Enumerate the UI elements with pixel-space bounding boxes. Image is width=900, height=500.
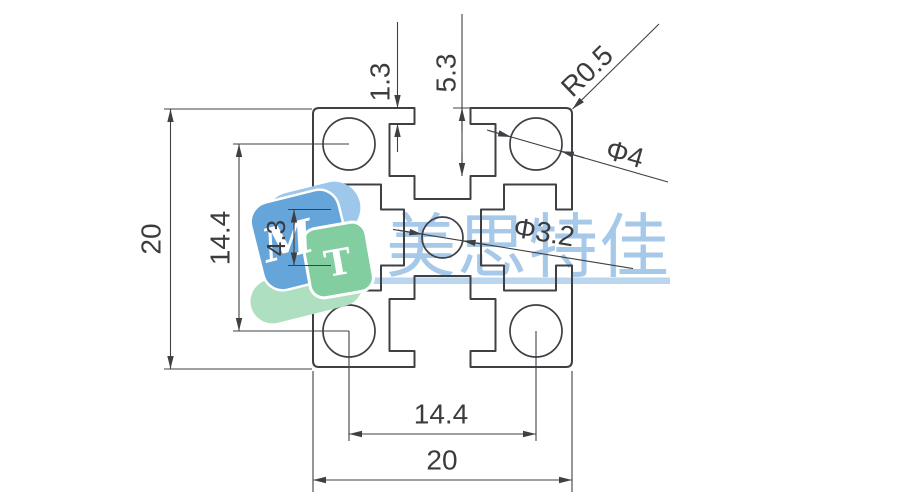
dim-hole-pitch-horizontal-label: 14.4 [414, 399, 469, 430]
brand-underline [372, 278, 670, 285]
dim-hole-pitch-horizontal: 14.4 [349, 331, 536, 441]
dim-corner-hole-dia: Φ4 [487, 130, 668, 182]
dim-lip-thickness-label: 1.3 [365, 63, 396, 102]
dim-corner-radius: R0.5 [555, 24, 659, 109]
dim-overall-height-label: 20 [136, 223, 167, 254]
dim-lip-thickness: 1.3 [365, 22, 398, 152]
technical-drawing-page: 美思特佳 M T 20 [0, 0, 900, 500]
dimension-arrow [489, 131, 511, 137]
dim-overall-width: 20 [313, 371, 572, 492]
dim-slot-depth: 5.3 [431, 14, 472, 176]
dim-slot-opening-label: 4.3 [261, 220, 291, 256]
technical-drawing-canvas: 美思特佳 M T 20 [0, 0, 900, 500]
dim-corner-radius-label: R0.5 [555, 39, 619, 102]
dim-slot-depth-label: 5.3 [431, 54, 462, 93]
dim-overall-width-label: 20 [426, 445, 457, 476]
dim-hole-pitch-vertical-label: 14.4 [205, 211, 236, 266]
dim-corner-hole-dia-label: Φ4 [603, 134, 648, 174]
